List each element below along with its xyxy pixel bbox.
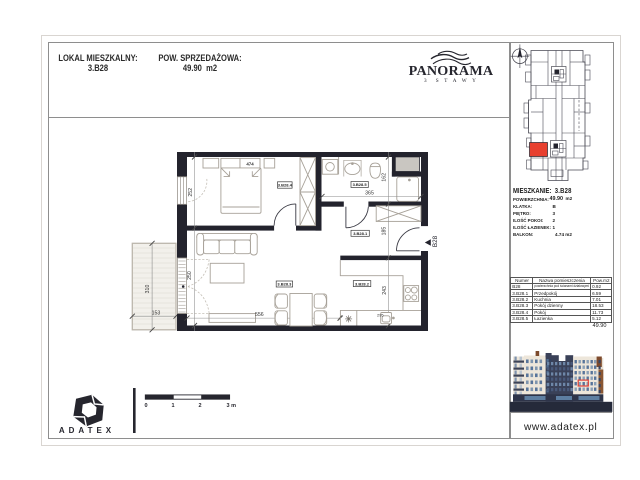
- svg-text:162: 162: [382, 173, 388, 182]
- svg-text:295: 295: [377, 312, 384, 317]
- svg-text:250: 250: [187, 271, 193, 280]
- svg-text:556: 556: [255, 312, 264, 318]
- svg-text:474: 474: [246, 161, 254, 166]
- svg-text:3.B28.3: 3.B28.3: [277, 282, 292, 287]
- svg-text:243: 243: [382, 286, 388, 295]
- svg-text:3.B28.1: 3.B28.1: [353, 231, 368, 236]
- svg-text:153: 153: [152, 311, 161, 317]
- svg-text:3.B28.5: 3.B28.5: [353, 182, 368, 187]
- svg-text:185: 185: [382, 227, 388, 236]
- svg-text:B28: B28: [432, 235, 439, 247]
- svg-text:3.B28.2: 3.B28.2: [355, 281, 370, 286]
- svg-text:3.B28.4: 3.B28.4: [278, 183, 293, 188]
- svg-text:310: 310: [145, 285, 151, 294]
- svg-text:252: 252: [188, 188, 194, 197]
- svg-text:365: 365: [365, 191, 374, 197]
